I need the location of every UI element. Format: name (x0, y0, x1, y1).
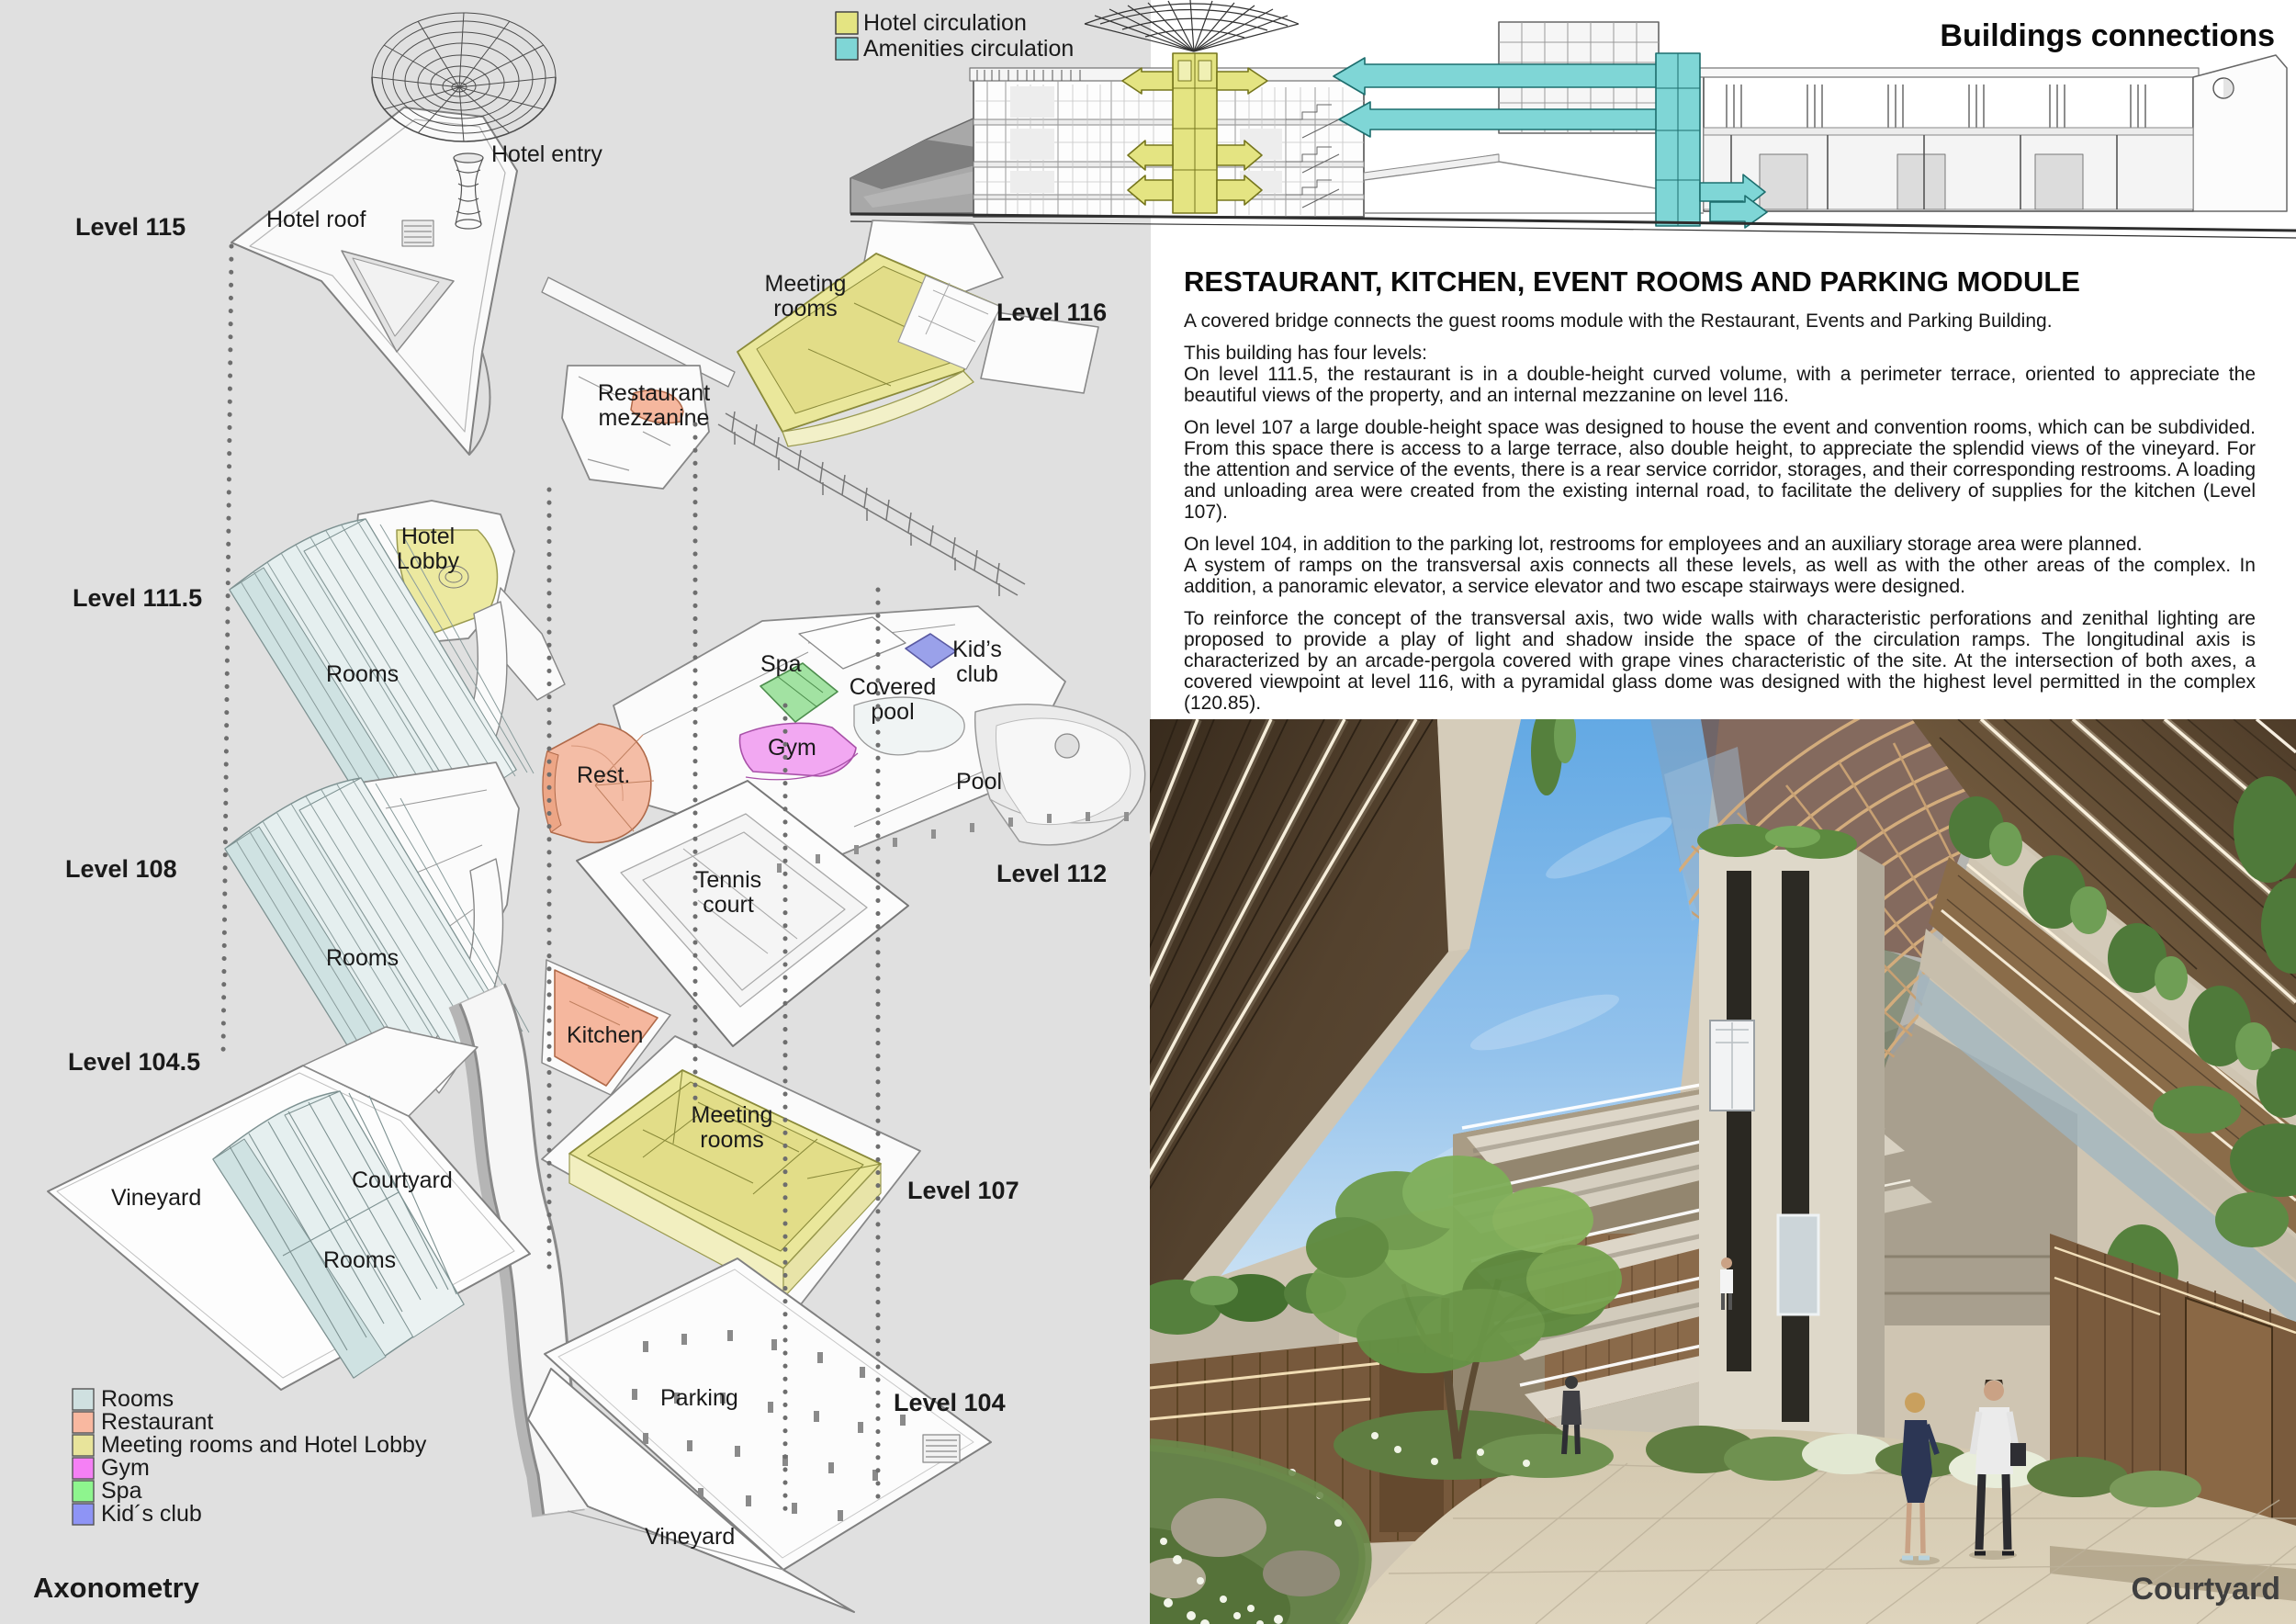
svg-text:Courtyard: Courtyard (2132, 1572, 2280, 1607)
svg-text:Parking: Parking (660, 1385, 738, 1411)
svg-text:Buildings connections: Buildings connections (1940, 18, 2275, 53)
svg-text:Meeting rooms and Hotel Lobby: Meeting rooms and Hotel Lobby (101, 1432, 427, 1458)
svg-text:Level 116: Level 116 (996, 299, 1107, 326)
svg-text:rooms: rooms (773, 296, 837, 321)
svg-text:Kid´s club: Kid´s club (101, 1501, 202, 1527)
svg-text:Kitchen: Kitchen (567, 1022, 643, 1048)
svg-text:Meeting: Meeting (692, 1102, 773, 1128)
svg-text:Restaurant: Restaurant (101, 1409, 213, 1435)
svg-text:court: court (703, 892, 754, 918)
svg-text:Level 104.5: Level 104.5 (68, 1048, 200, 1076)
svg-text:Lobby: Lobby (397, 548, 460, 574)
svg-text:Rooms: Rooms (326, 661, 399, 687)
svg-text:Rooms: Rooms (101, 1386, 174, 1412)
svg-text:Gym: Gym (768, 735, 816, 761)
svg-text:Gym: Gym (101, 1455, 150, 1481)
svg-text:Amenities circulation: Amenities circulation (863, 36, 1074, 62)
svg-text:Kid’s: Kid’s (952, 637, 1002, 662)
svg-text:Rooms: Rooms (326, 945, 399, 971)
svg-text:Hotel entry: Hotel entry (491, 141, 602, 167)
svg-text:Level 107: Level 107 (907, 1177, 1019, 1204)
svg-text:Vineyard: Vineyard (645, 1524, 735, 1550)
svg-text:rooms: rooms (700, 1127, 763, 1153)
svg-text:Vineyard: Vineyard (111, 1185, 201, 1211)
svg-text:Pool: Pool (956, 769, 1002, 795)
svg-text:Hotel roof: Hotel roof (266, 207, 366, 232)
svg-text:Meeting: Meeting (765, 271, 847, 297)
svg-text:Covered: Covered (850, 674, 937, 700)
svg-text:Rest.: Rest. (577, 762, 630, 788)
svg-text:Spa: Spa (101, 1478, 142, 1504)
svg-text:Courtyard: Courtyard (352, 1167, 453, 1193)
svg-text:Restaurant: Restaurant (598, 380, 710, 406)
svg-text:Level 115: Level 115 (75, 213, 186, 241)
svg-text:Hotel circulation: Hotel circulation (863, 10, 1027, 36)
svg-text:Level 112: Level 112 (996, 860, 1107, 887)
svg-text:Tennis: Tennis (695, 867, 761, 893)
svg-text:Hotel: Hotel (401, 524, 455, 549)
svg-text:Level 111.5: Level 111.5 (73, 584, 202, 612)
svg-text:Level 104: Level 104 (894, 1389, 1006, 1416)
svg-text:club: club (956, 661, 998, 687)
svg-text:Rooms: Rooms (323, 1247, 396, 1273)
svg-text:mezzanine: mezzanine (599, 405, 710, 431)
svg-text:Spa: Spa (760, 651, 802, 677)
svg-text:Level 108: Level 108 (65, 855, 177, 883)
svg-text:Axonometry: Axonometry (33, 1572, 200, 1604)
